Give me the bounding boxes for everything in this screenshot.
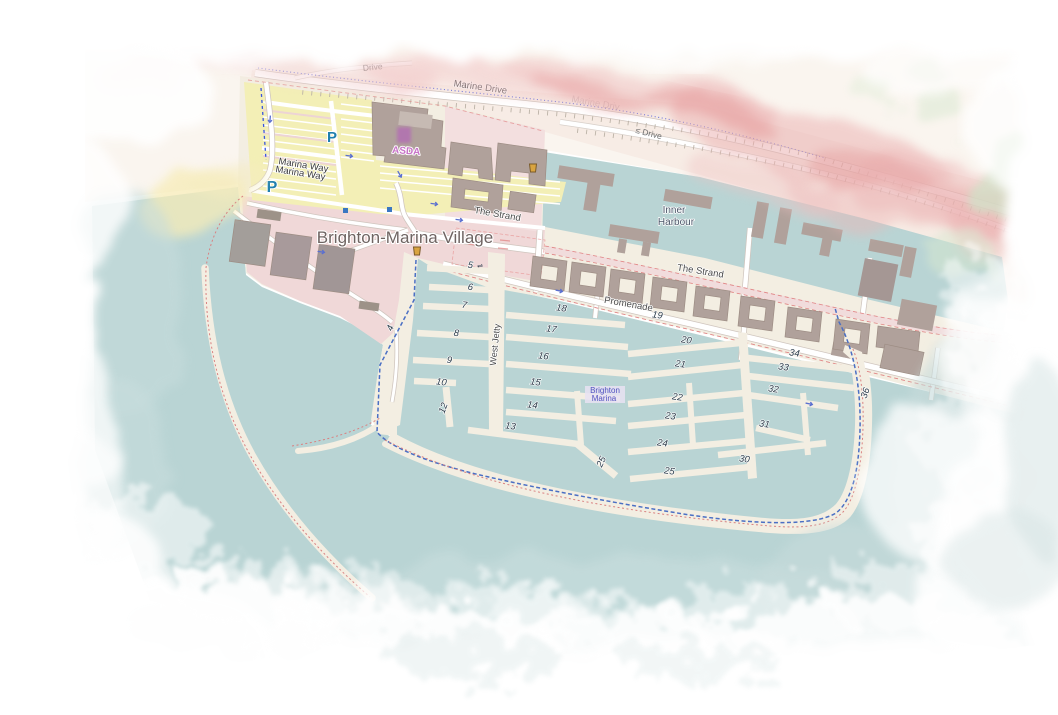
svg-text:25: 25 [662,465,676,478]
svg-text:Harbour: Harbour [658,217,695,228]
svg-text:Inner: Inner [663,205,686,216]
svg-text:34: 34 [788,347,800,359]
svg-text:31: 31 [758,418,770,430]
svg-text:24: 24 [655,437,668,450]
svg-text:⇌: ⇌ [477,263,483,270]
svg-text:22: 22 [670,391,684,404]
svg-text:ASDA: ASDA [392,145,421,158]
svg-text:14: 14 [526,399,538,411]
svg-text:P: P [327,129,337,146]
svg-text:23: 23 [663,410,677,423]
svg-text:20: 20 [679,334,693,347]
svg-text:Brighton-Marina Village: Brighton-Marina Village [317,228,493,247]
svg-text:Marina: Marina [592,394,617,403]
svg-text:21: 21 [673,358,686,371]
